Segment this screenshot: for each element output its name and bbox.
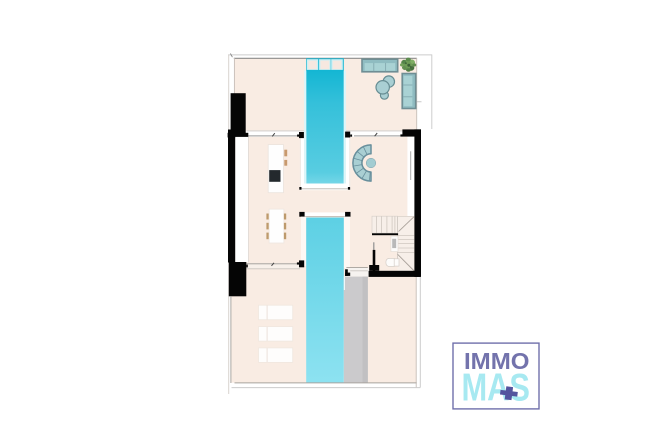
- svg-text:MAS: MAS: [462, 366, 531, 409]
